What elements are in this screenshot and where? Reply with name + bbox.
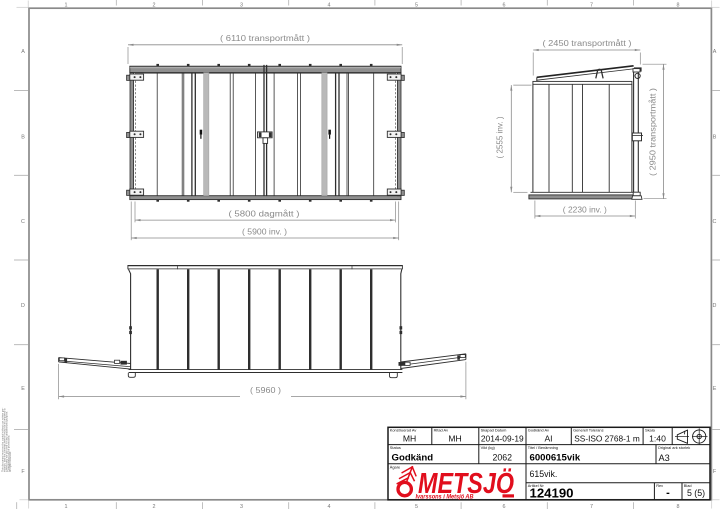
svg-text:A3: A3	[659, 453, 670, 463]
svg-text:Titel / Benämning: Titel / Benämning	[528, 445, 558, 450]
svg-text:A: A	[21, 49, 25, 55]
svg-text:5: 5	[415, 3, 418, 9]
svg-text:C: C	[713, 219, 717, 225]
svg-text:Godkänd Av: Godkänd Av	[528, 428, 549, 433]
svg-text:( 5960 ): ( 5960 )	[250, 386, 281, 395]
svg-text:124190: 124190	[530, 485, 574, 500]
svg-text:4: 4	[328, 3, 331, 9]
svg-text:2: 2	[153, 3, 156, 9]
svg-text:615vik.: 615vik.	[530, 469, 558, 479]
svg-text:B: B	[21, 135, 25, 141]
svg-text:Ivarssons i Metsjö AB: Ivarssons i Metsjö AB	[416, 494, 474, 501]
svg-text:1: 1	[65, 504, 68, 509]
svg-text:SS-ISO 2768-1 m: SS-ISO 2768-1 m	[574, 434, 640, 444]
svg-text:5: 5	[415, 504, 418, 509]
svg-text:E: E	[713, 386, 717, 392]
svg-text:-: -	[666, 487, 670, 499]
svg-text:MH: MH	[448, 434, 461, 444]
svg-text:Original ark storlek: Original ark storlek	[658, 445, 690, 450]
svg-text:Status: Status	[390, 445, 401, 450]
svg-text:1: 1	[65, 3, 68, 9]
svg-text:D: D	[713, 303, 717, 309]
svg-text:3: 3	[240, 504, 243, 509]
svg-text:Godkänd: Godkänd	[392, 452, 434, 463]
svg-text:7: 7	[590, 504, 593, 509]
svg-text:Skala: Skala	[645, 428, 656, 433]
svg-text:Ritad Av: Ritad Av	[434, 428, 448, 433]
svg-text:Rev: Rev	[656, 483, 663, 488]
svg-text:7: 7	[590, 3, 593, 9]
svg-text:4: 4	[328, 504, 331, 509]
svg-text:All rights reserved.: All rights reserved.	[9, 451, 12, 472]
svg-text:D: D	[21, 303, 25, 309]
svg-text:6: 6	[503, 504, 506, 509]
svg-text:( 2555 inv. ): ( 2555 inv. )	[495, 116, 504, 158]
svg-text:2062: 2062	[493, 453, 513, 463]
svg-text:2014-09-19: 2014-09-19	[481, 434, 524, 444]
svg-text:3: 3	[240, 3, 243, 9]
svg-text:( 6110 transportmått ): ( 6110 transportmått )	[220, 34, 310, 43]
svg-text:C: C	[21, 219, 25, 225]
svg-text:5 (5): 5 (5)	[687, 488, 705, 498]
svg-text:2: 2	[153, 504, 156, 509]
svg-text:( 2230 inv. ): ( 2230 inv. )	[563, 206, 607, 215]
svg-text:B: B	[713, 135, 717, 141]
svg-text:( 5800 dagmått ): ( 5800 dagmått )	[229, 210, 300, 219]
svg-text:8: 8	[677, 504, 680, 509]
svg-text:( 5900 inv. ): ( 5900 inv. )	[242, 228, 287, 237]
svg-text:AI: AI	[544, 434, 552, 444]
svg-text:E: E	[21, 386, 25, 392]
svg-text:Generell Tolerans: Generell Tolerans	[573, 428, 603, 433]
svg-text:A: A	[713, 49, 717, 55]
svg-text:Skapad Datum: Skapad Datum	[481, 428, 507, 433]
svg-text:1:40: 1:40	[649, 434, 666, 444]
svg-text:Konstruerad Av: Konstruerad Av	[390, 428, 417, 433]
svg-text:8: 8	[677, 3, 680, 9]
svg-text:MH: MH	[403, 434, 416, 444]
svg-text:( 2950 transportmått ): ( 2950 transportmått )	[649, 88, 658, 176]
svg-text:6000615vik: 6000615vik	[530, 453, 581, 464]
svg-text:Ägare: Ägare	[390, 464, 400, 469]
svg-text:6: 6	[503, 3, 506, 9]
svg-text:( 2450 transportmått ): ( 2450 transportmått )	[543, 39, 632, 48]
svg-text:Vikt (kg): Vikt (kg)	[481, 445, 496, 450]
